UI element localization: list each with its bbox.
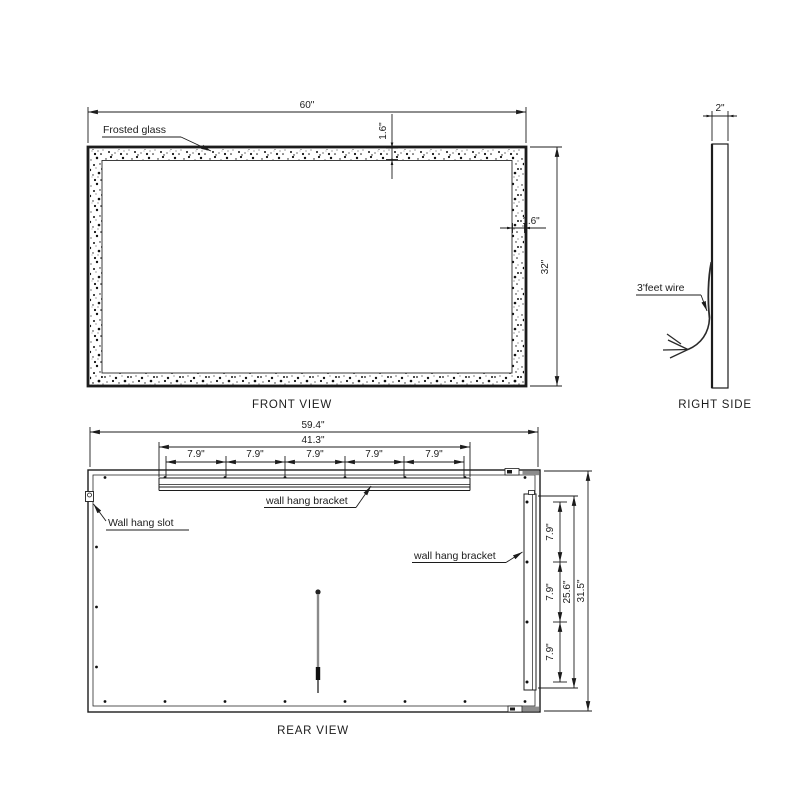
front-width-value: 60" — [300, 100, 315, 111]
wall-hang-slot — [86, 492, 94, 502]
thickness-value: 2" — [715, 103, 725, 114]
mirror-spec-drawing: 60" 32" 1.6" 1.6" Frosted glass — [0, 0, 800, 800]
wire-label: 3'feet wire — [637, 282, 685, 294]
wall-hang-slot-label: Wall hang slot — [108, 517, 174, 529]
border-top-value: 1.6" — [378, 122, 389, 140]
front-view: 60" 32" 1.6" 1.6" Frosted glass — [88, 100, 562, 411]
top-segment-value: 7.9" — [425, 449, 443, 460]
top-segment-value: 7.9" — [365, 449, 383, 460]
right-segment-value: 7.9" — [545, 523, 556, 541]
side-panel — [712, 144, 728, 388]
frosted-glass-label: Frosted glass — [103, 124, 166, 136]
wire-callout: 3'feet wire — [636, 282, 707, 311]
top-bracket-width-value: 41.3" — [301, 435, 324, 446]
rear-view-title: REAR VIEW — [277, 725, 349, 737]
rear-view: 59.4" 41.3" 7.9" 7.9" 7.9" 7.9" 7.9" — [86, 420, 593, 737]
rear-width-value: 59.4" — [301, 420, 324, 431]
right-bracket-label: wall hang bracket — [413, 550, 496, 562]
right-bracket-height-value: 25.6" — [562, 580, 573, 603]
top-segment-value: 7.9" — [306, 449, 324, 460]
front-height-value: 32" — [540, 259, 551, 274]
mirror-frame — [88, 147, 526, 386]
top-bracket-label: wall hang bracket — [265, 495, 348, 507]
drawing-svg: 60" 32" 1.6" 1.6" Frosted glass — [0, 0, 800, 800]
rear-height-value: 31.5" — [576, 579, 587, 602]
top-segment-value: 7.9" — [246, 449, 264, 460]
right-side-view: 2" 3'feet wire RIGHT SIDE — [636, 103, 752, 411]
top-segment-value: 7.9" — [187, 449, 205, 460]
right-segment-value: 7.9" — [545, 583, 556, 601]
right-segment-value: 7.9" — [545, 643, 556, 661]
dim-thickness — [703, 111, 737, 141]
border-right-value: 1.6" — [522, 216, 540, 227]
right-wall-hang-bracket — [524, 491, 536, 691]
front-view-title: FRONT VIEW — [252, 399, 332, 411]
right-side-title: RIGHT SIDE — [678, 399, 752, 411]
mirror-inner-edge — [102, 161, 512, 374]
frosted-glass-band — [90, 149, 524, 385]
power-wire — [663, 262, 711, 358]
